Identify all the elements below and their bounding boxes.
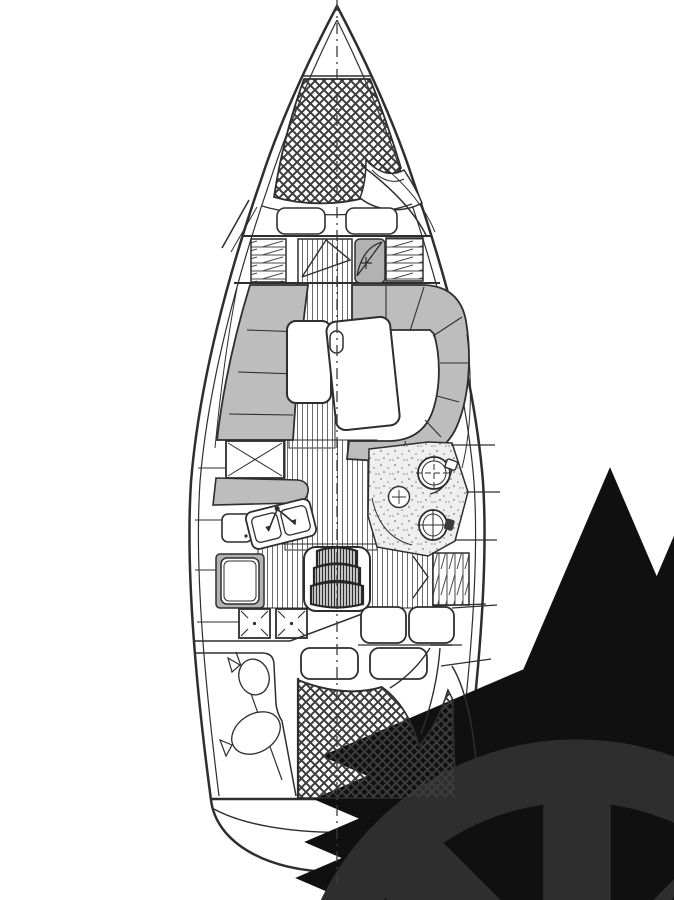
louvered-locker-starboard [386,238,423,281]
galley-hatch-starboard [276,609,307,638]
louvered-locker-port [251,239,286,282]
yacht-floorplan-drawing [0,0,674,900]
head-shower-floor [368,442,468,556]
aft-seat-cushion-port [361,607,406,643]
table-leaf-port [287,321,331,403]
forward-pillow-starboard [346,208,397,234]
stove-top [221,558,259,604]
galley-hatch-port [239,609,270,638]
door-panel-gray [355,239,385,283]
icebox-latch-dot [244,534,247,537]
hatch-dot [290,622,293,625]
aft-seat-cushion-starboard [409,607,454,643]
hatch-dot [253,622,256,625]
head-drain [389,487,410,508]
yacht-floorplan-canvas [0,0,674,900]
aft-pillow-port [301,648,358,679]
forward-pillow-port [277,208,325,234]
forward-cabin-doorway-sole [298,239,352,283]
wet-locker-louvered [433,553,469,605]
